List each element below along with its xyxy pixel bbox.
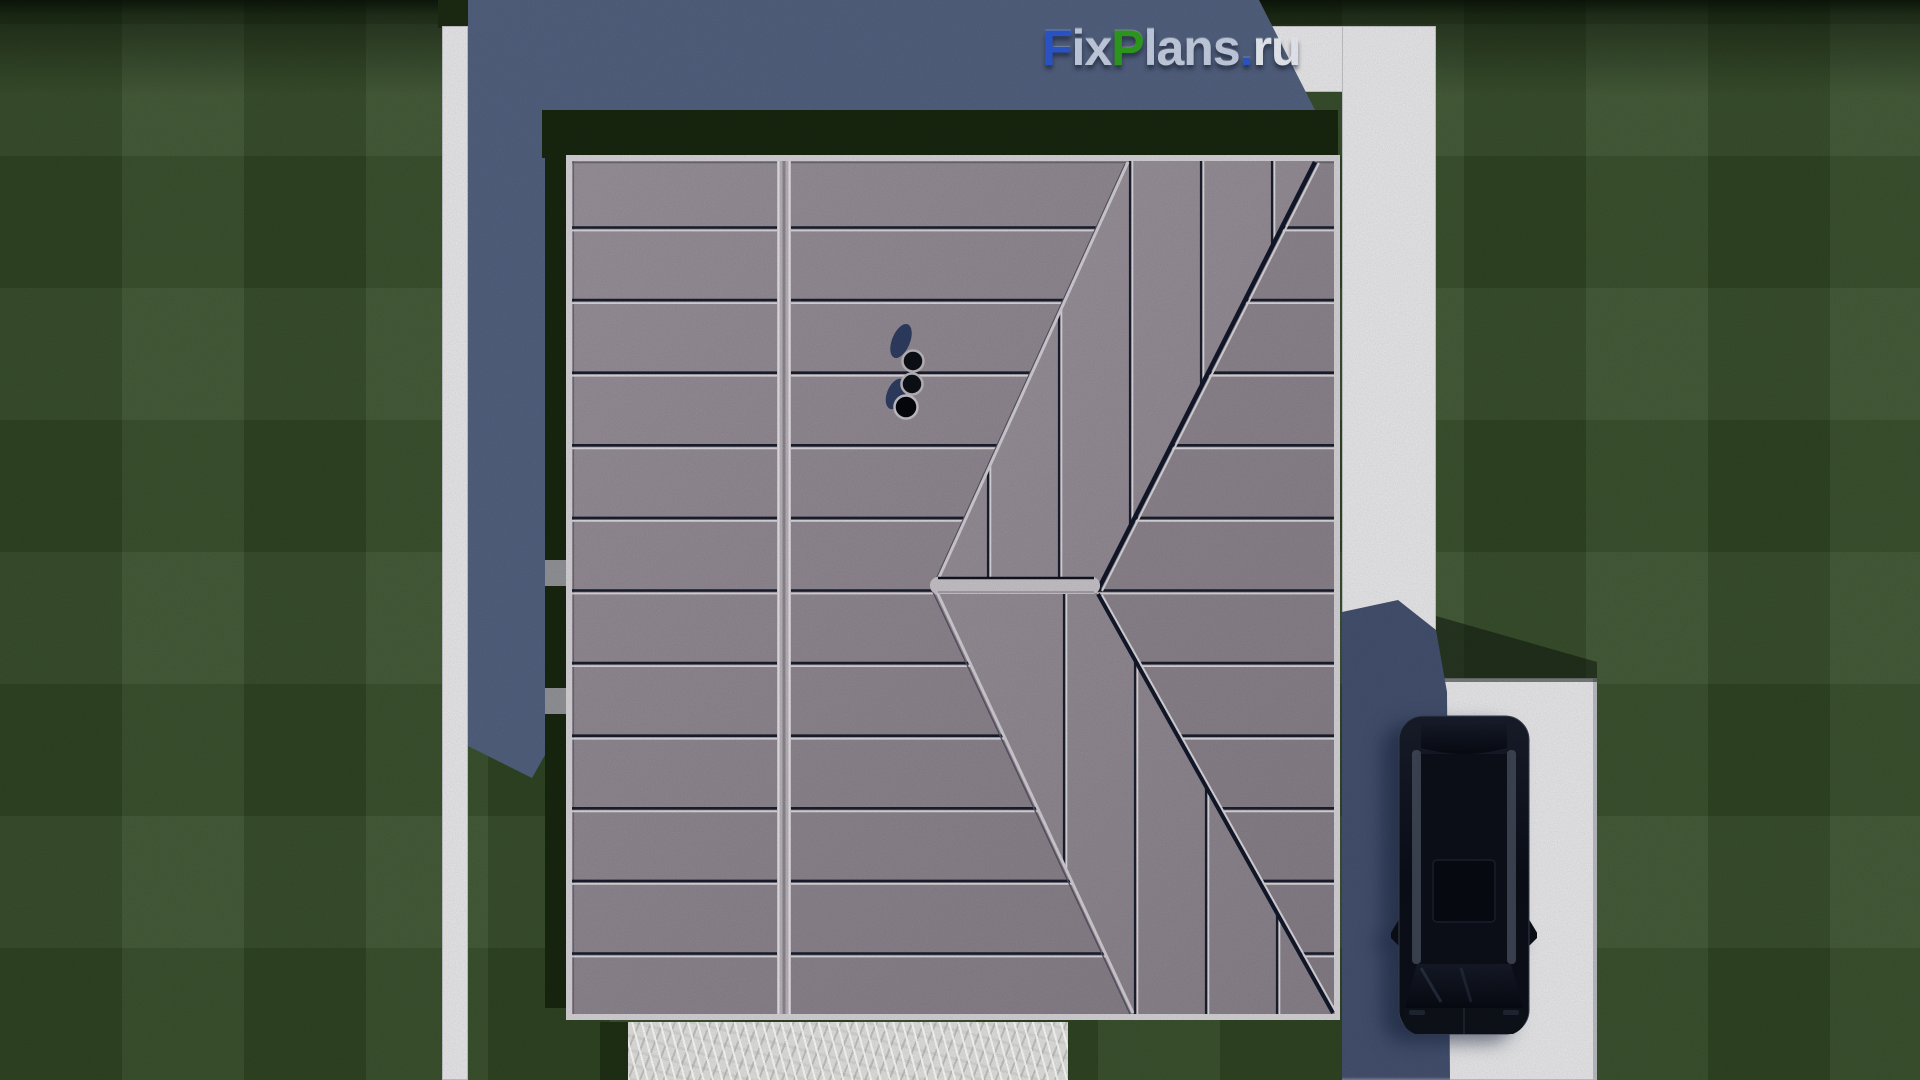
roof-ridge-cap [930,577,1100,594]
watermark-letter: lans [1144,22,1240,74]
watermark-letter: ix [1072,22,1112,74]
headlight-left [1409,1010,1425,1015]
parked-car [1391,710,1537,1040]
rear-window [1421,724,1507,754]
fixplans-watermark-logo: FixPlans.ru [1042,22,1301,78]
vent-pipe [903,351,924,372]
watermark-letter: ru [1253,22,1301,74]
watermark-letter: . [1240,22,1253,74]
headlight-right [1503,1010,1519,1015]
car-roof [1417,754,1511,964]
roof-vertical-ridge [777,161,791,1014]
vent-pipe [895,396,918,419]
watermark-letter: P [1111,22,1143,74]
hip-roof [0,0,1920,1080]
roof-rail-right [1507,750,1516,964]
watermark-letter: F [1042,22,1072,74]
sunroof [1433,860,1495,922]
aerial-render-scene: FixPlans.ru [0,0,1920,1080]
vent-pipe [902,374,923,395]
roof-rail-left [1412,750,1421,964]
